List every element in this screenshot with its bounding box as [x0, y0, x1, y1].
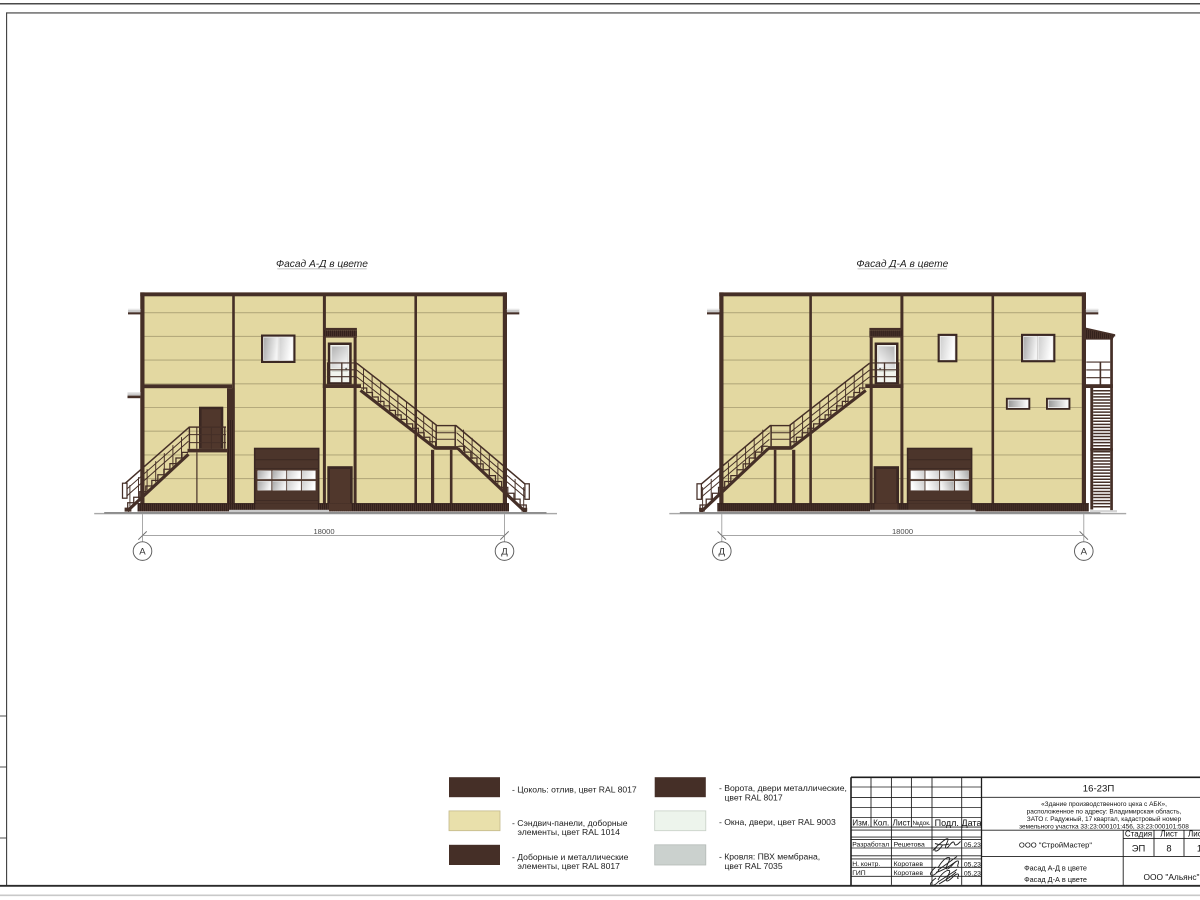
svg-text:Д: Д	[501, 547, 508, 558]
svg-text:элементы, цвет RAL 8017: элементы, цвет RAL 8017	[518, 861, 621, 871]
svg-text:Лист: Лист	[893, 819, 911, 828]
svg-text:Решетова: Решетова	[894, 842, 925, 849]
svg-text:- Окна, двери, цвет RAL 9003: - Окна, двери, цвет RAL 9003	[719, 817, 836, 827]
svg-text:Стадия: Стадия	[1125, 830, 1152, 839]
svg-text:Фасад А-Д в цвете: Фасад А-Д в цвете	[276, 259, 368, 270]
svg-text:Листов: Листов	[1188, 830, 1200, 839]
svg-text:- Кровля: ПВХ мембрана,: - Кровля: ПВХ мембрана,	[719, 851, 820, 861]
svg-text:Изм.: Изм.	[852, 819, 870, 828]
svg-text:элементы, цвет RAL 1014: элементы, цвет RAL 1014	[518, 827, 621, 837]
svg-text:Д: Д	[719, 547, 726, 558]
svg-text:Лист: Лист	[1160, 830, 1178, 839]
svg-text:18000: 18000	[892, 527, 913, 536]
svg-text:ЭП: ЭП	[1132, 843, 1145, 854]
svg-text:- Цоколь: отлив, цвет RAL 8017: - Цоколь: отлив, цвет RAL 8017	[512, 784, 637, 794]
svg-text:ООО "Альянс": ООО "Альянс"	[1144, 872, 1200, 882]
svg-text:Коротаев: Коротаев	[894, 870, 924, 877]
svg-text:А: А	[139, 547, 146, 558]
svg-text:Разработал: Разработал	[852, 841, 889, 849]
svg-text:05.23: 05.23	[964, 870, 981, 877]
svg-text:Фасад Д-А в цвете: Фасад Д-А в цвете	[856, 259, 948, 270]
svg-text:цвет RAL 7035: цвет RAL 7035	[725, 861, 783, 871]
svg-text:№док.: №док.	[913, 820, 931, 827]
svg-text:Кол.: Кол.	[873, 819, 889, 828]
svg-text:Дата: Дата	[962, 818, 982, 828]
svg-text:цвет RAL 8017: цвет RAL 8017	[725, 793, 783, 803]
svg-text:Подл.: Подл.	[935, 818, 959, 828]
svg-text:Фасад Д-А в цвете: Фасад Д-А в цвете	[1024, 875, 1087, 884]
svg-text:05.23: 05.23	[964, 861, 981, 868]
svg-text:«Здание производственного цеха: «Здание производственного цеха с АБК»,	[1041, 801, 1167, 808]
svg-text:Н. контр.: Н. контр.	[852, 861, 880, 868]
svg-text:ООО "СтройМастер": ООО "СтройМастер"	[1019, 840, 1092, 849]
svg-text:А: А	[1081, 547, 1088, 558]
svg-text:05.23: 05.23	[964, 842, 981, 849]
svg-text:расположенное по адресу: Влади: расположенное по адресу: Владимирская об…	[1027, 807, 1182, 815]
svg-text:16-23П: 16-23П	[1083, 784, 1115, 795]
svg-text:- Ворота, двери металлические,: - Ворота, двери металлические,	[719, 783, 847, 793]
svg-text:8: 8	[1166, 843, 1171, 854]
svg-text:18000: 18000	[313, 527, 334, 536]
svg-text:ГИП: ГИП	[852, 870, 866, 877]
svg-text:ЗАТО г. Радужный, 17 квартал,: ЗАТО г. Радужный, 17 квартал, кадастровы…	[1027, 815, 1182, 823]
svg-text:Коротаев: Коротаев	[894, 861, 924, 868]
svg-text:Фасад А-Д в цвете: Фасад А-Д в цвете	[1024, 864, 1087, 873]
